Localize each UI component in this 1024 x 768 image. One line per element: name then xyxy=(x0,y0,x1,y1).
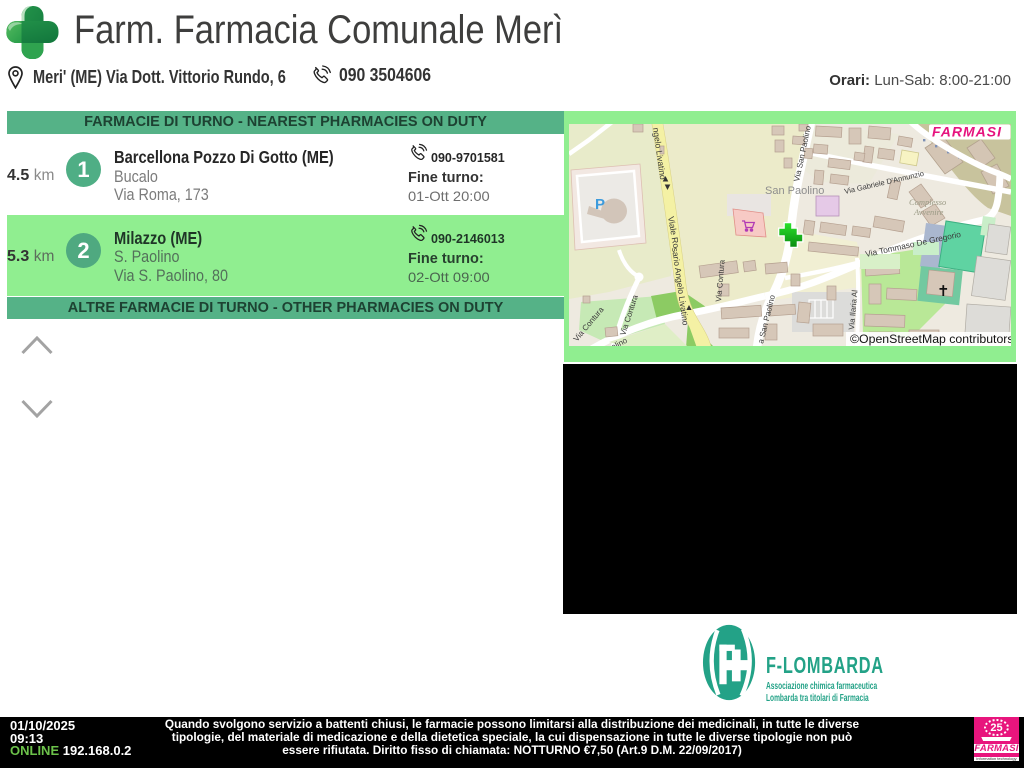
svg-text:Avvenire: Avvenire xyxy=(913,207,944,217)
svg-text:FARMASI: FARMASI xyxy=(932,124,1002,140)
svg-text:©OpenStreetMap contributors: ©OpenStreetMap contributors xyxy=(850,332,1011,346)
svg-text:P: P xyxy=(595,196,605,213)
svg-text:Complesso: Complesso xyxy=(909,197,946,207)
svg-text:San Paolino: San Paolino xyxy=(765,185,824,197)
svg-text:✝: ✝ xyxy=(937,284,950,300)
